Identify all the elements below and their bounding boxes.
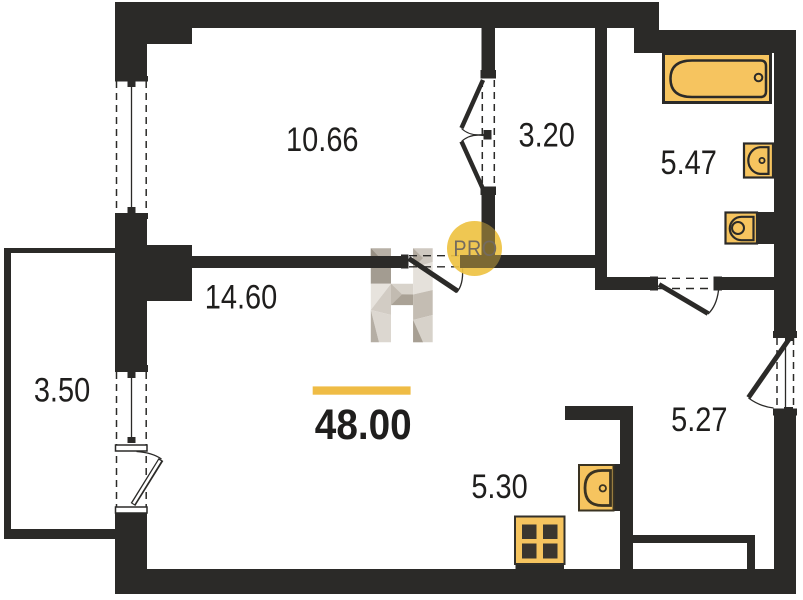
svg-text:48.00: 48.00 xyxy=(315,400,412,448)
svg-text:5.27: 5.27 xyxy=(671,399,727,438)
svg-text:14.60: 14.60 xyxy=(205,277,277,316)
svg-text:PRO: PRO xyxy=(453,237,497,261)
svg-text:5.30: 5.30 xyxy=(471,466,527,505)
svg-text:5.47: 5.47 xyxy=(661,143,717,182)
svg-text:3.20: 3.20 xyxy=(519,115,575,154)
svg-text:10.66: 10.66 xyxy=(286,120,358,159)
svg-text:3.50: 3.50 xyxy=(34,370,90,409)
